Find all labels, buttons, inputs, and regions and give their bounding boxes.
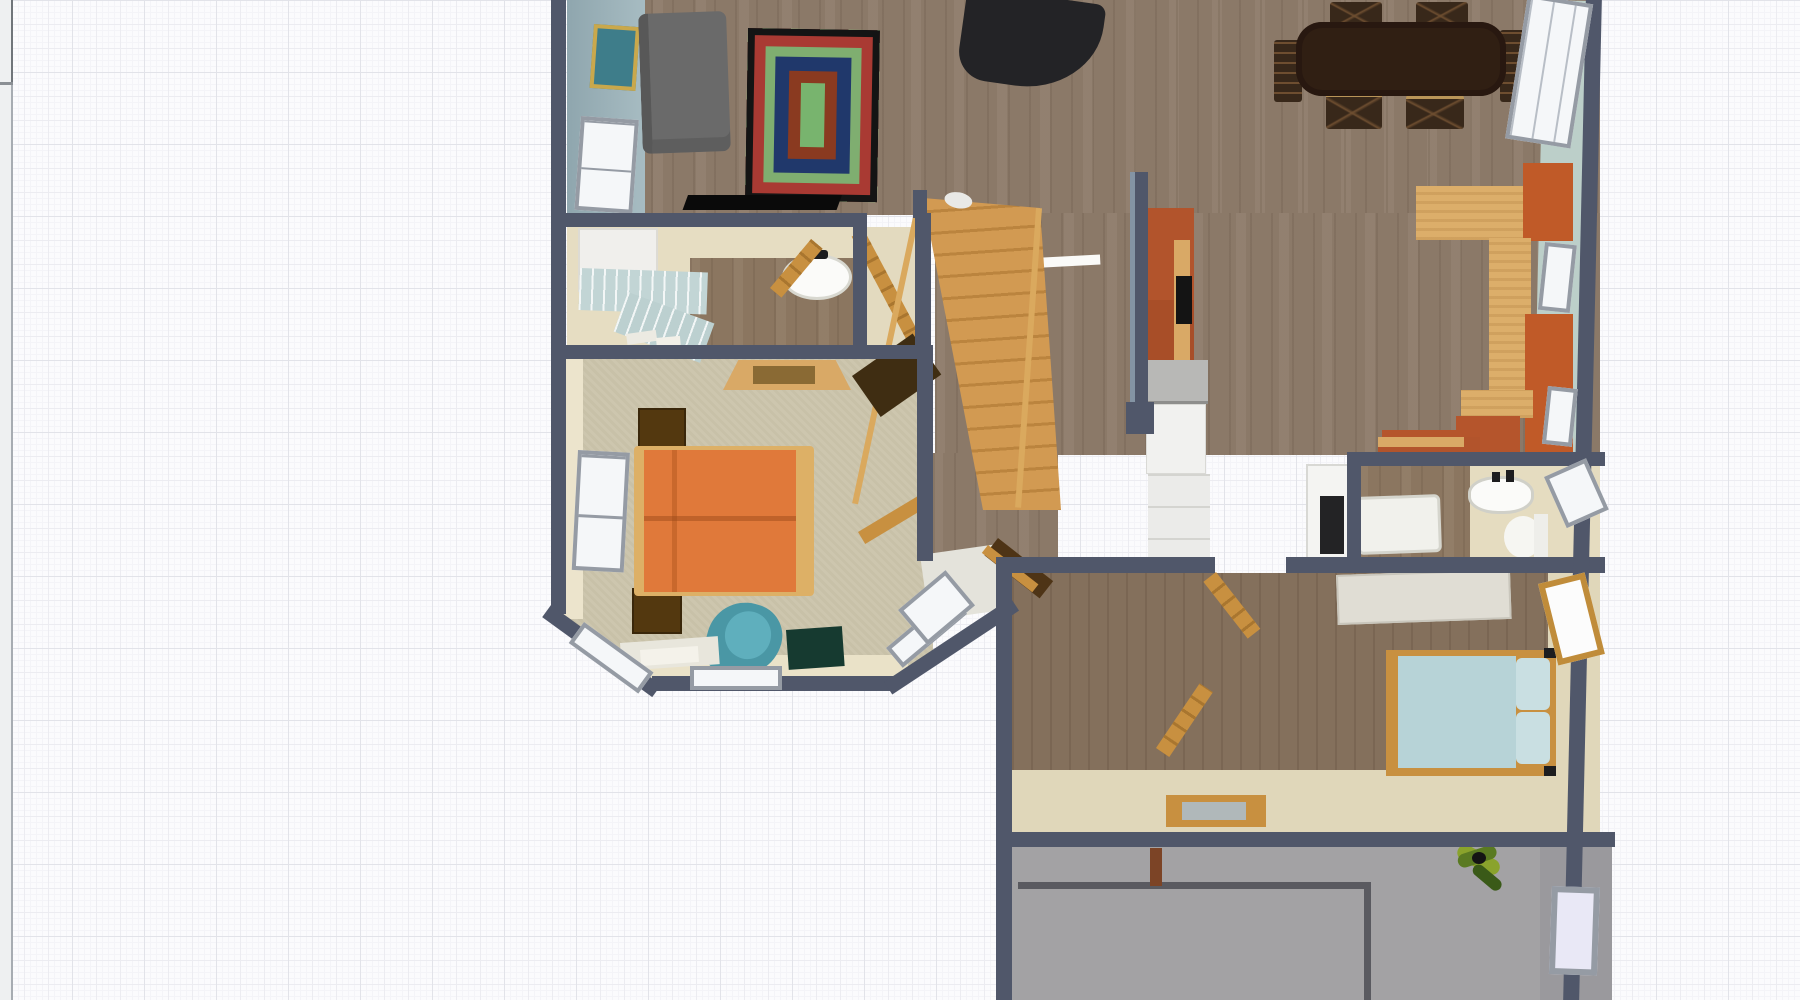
layered-area-rug[interactable] <box>745 28 880 202</box>
floor-plan-canvas[interactable] <box>0 0 1800 1000</box>
master-bed-crease <box>644 516 796 521</box>
gray-counter[interactable] <box>1144 360 1208 404</box>
gray-sofa[interactable] <box>638 11 731 154</box>
panel-divider-tick <box>0 82 13 85</box>
guest-bed-pillow <box>1516 712 1550 764</box>
sectional-back-top[interactable] <box>1416 186 1530 240</box>
left-exterior-wall[interactable] <box>551 0 566 614</box>
garage-door-outline-v <box>1364 882 1371 1000</box>
kitchen-guestroom-wall-east[interactable] <box>1286 557 1605 573</box>
dining-table[interactable] <box>1296 22 1506 96</box>
guest-bed-pillow <box>1516 658 1550 710</box>
ceiling-fixture-inner <box>753 366 815 384</box>
bathroom-cabinet-top <box>1378 437 1464 447</box>
bathroom-closet-wall[interactable] <box>853 213 867 359</box>
sectional-back-bottom[interactable] <box>1461 390 1533 418</box>
dining-chair[interactable] <box>1326 93 1382 129</box>
garage-top-wall[interactable] <box>1010 832 1615 847</box>
panel-divider-dark <box>11 0 13 83</box>
garage-floor[interactable] <box>1012 846 1612 1000</box>
sectional-window-lower[interactable] <box>1542 386 1578 447</box>
panel-divider[interactable] <box>11 0 13 1000</box>
bathroom-left-wall[interactable] <box>1347 452 1361 571</box>
kitchen-guestroom-wall-west[interactable] <box>1010 557 1215 573</box>
garage-window[interactable] <box>1549 886 1600 976</box>
counter-run-white[interactable] <box>1148 474 1210 570</box>
bathroom-faucet <box>1492 472 1500 482</box>
master-bed-mattress[interactable] <box>644 450 796 592</box>
bathroom-sink[interactable] <box>1468 476 1534 514</box>
master-left-window[interactable] <box>572 450 630 573</box>
master-top-wall[interactable] <box>551 345 933 359</box>
master-bed-fold <box>672 450 677 592</box>
garage-door-trim <box>1150 848 1162 886</box>
closet-stair-wall[interactable] <box>915 213 931 359</box>
central-wall[interactable] <box>996 557 1012 1000</box>
bathroom-top-wall[interactable] <box>1347 452 1605 466</box>
sectional-seat-corner[interactable] <box>1523 163 1573 241</box>
refrigerator[interactable] <box>1146 404 1206 474</box>
potted-plant-pot <box>1472 852 1486 864</box>
bathtub[interactable] <box>1356 494 1442 555</box>
guest-bed-post <box>1544 766 1556 776</box>
dresser[interactable] <box>1336 569 1512 625</box>
flat-tv[interactable] <box>683 195 842 210</box>
side-panel-gutter <box>0 0 11 1000</box>
wall-picture[interactable] <box>590 24 640 91</box>
toilet-tank <box>1534 514 1548 560</box>
guest-bedroom-wall-face-bottom <box>1012 770 1600 832</box>
bathroom-faucet <box>1506 470 1514 482</box>
bay-window-bottom[interactable] <box>690 666 782 690</box>
kitchen-partition-cap[interactable] <box>1126 402 1154 434</box>
guest-bed-mattress[interactable] <box>1398 656 1516 768</box>
garage-door-outline-h <box>1018 882 1370 889</box>
living-bathroom-wall[interactable] <box>551 213 867 227</box>
living-window[interactable] <box>574 116 638 214</box>
stair-top-stub-wall[interactable] <box>913 190 927 218</box>
master-right-wall[interactable] <box>917 359 933 561</box>
oven-front <box>1320 496 1344 554</box>
dining-chair[interactable] <box>1406 95 1464 129</box>
microwave-nook[interactable] <box>1176 276 1192 324</box>
kitchen-partition-wall[interactable] <box>1130 172 1148 412</box>
door-threshold-inner <box>1182 802 1246 820</box>
green-ottoman[interactable] <box>786 626 845 670</box>
